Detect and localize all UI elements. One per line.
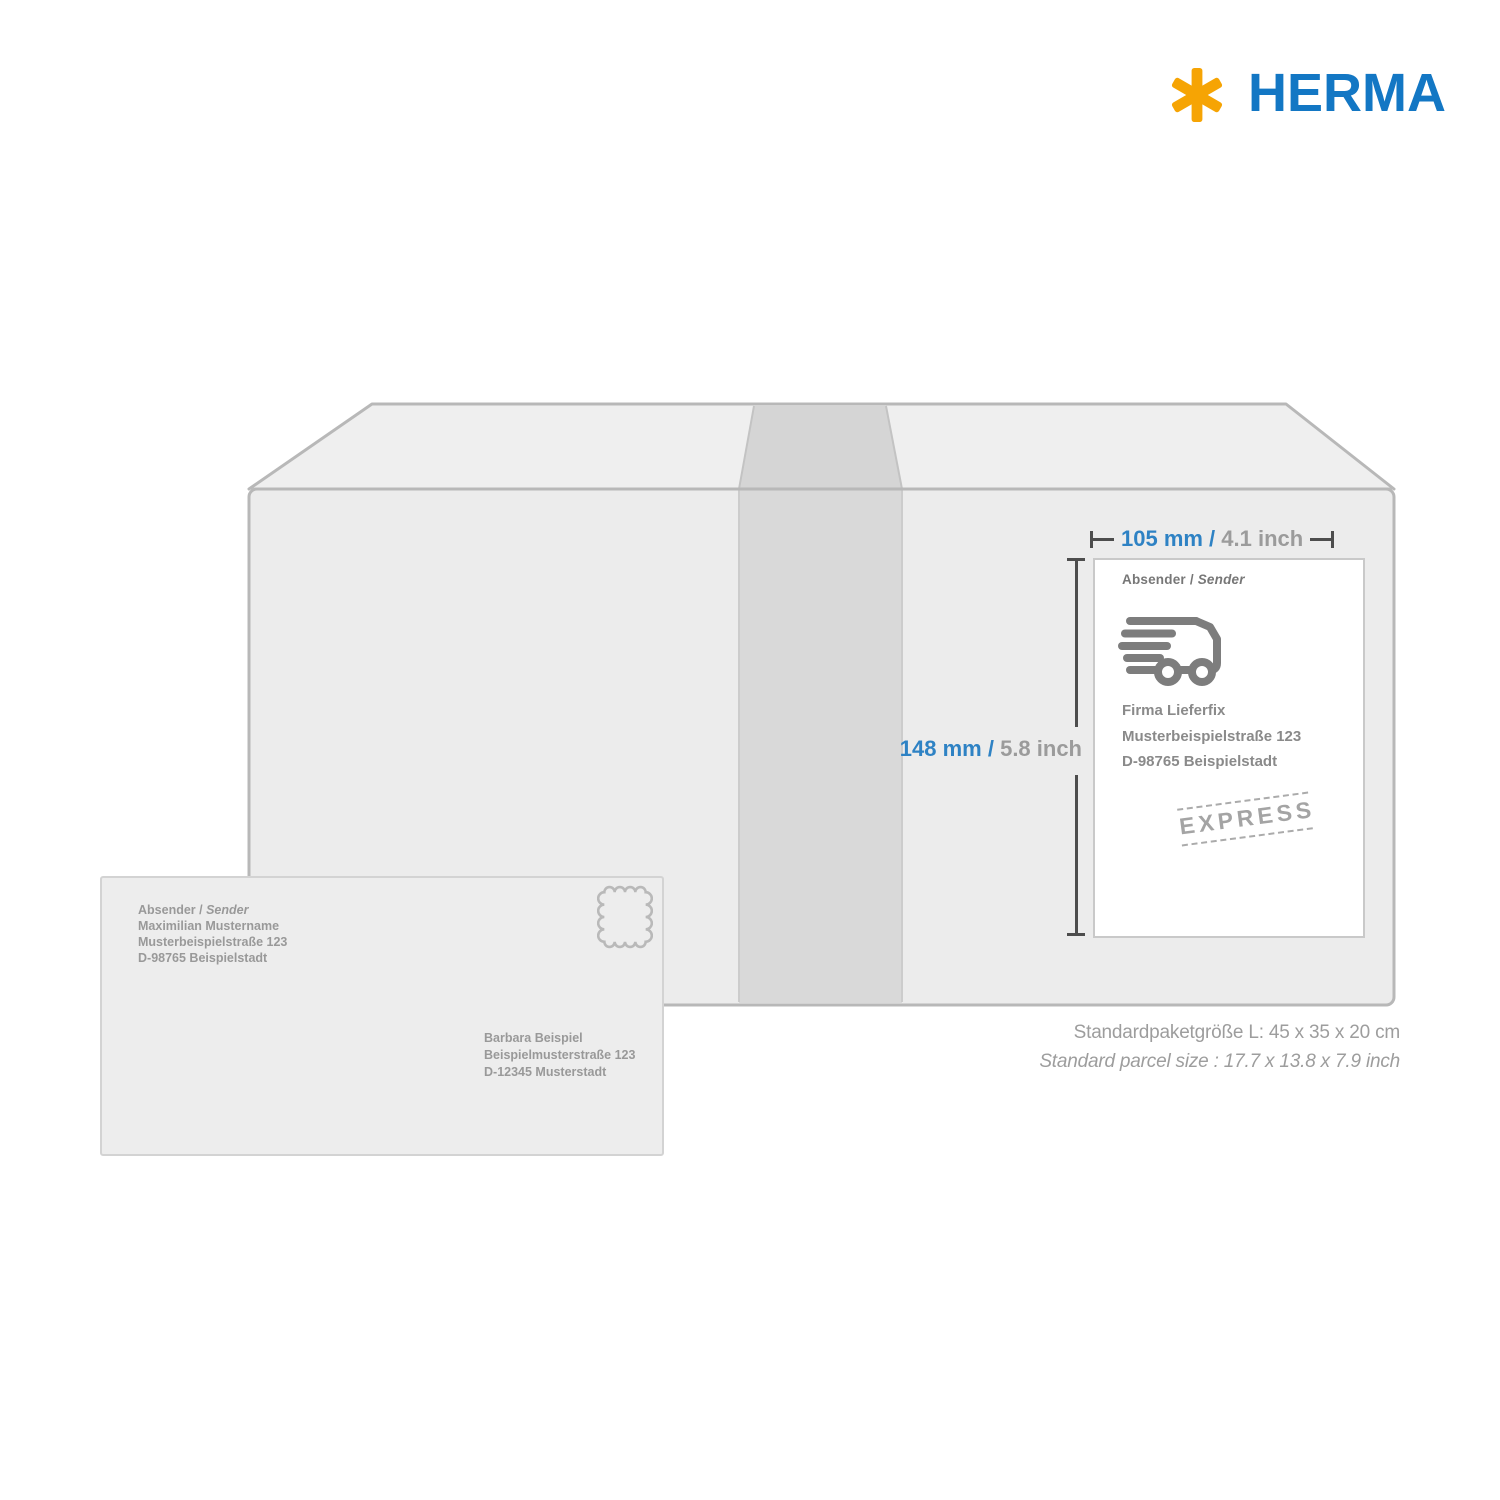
dimension-line — [1093, 538, 1114, 541]
envelope-sender-header: Absender / Sender — [138, 902, 287, 918]
label-header-en: Sender — [1198, 572, 1245, 587]
parcel-size-en: Standard parcel size : 17.7 x 13.8 x 7.9… — [900, 1047, 1400, 1076]
envelope-header-en: Sender — [206, 903, 248, 917]
parcel-size-caption: Standardpaketgröße L: 45 x 35 x 20 cm St… — [900, 1018, 1400, 1076]
delivery-truck-icon — [1113, 612, 1251, 704]
herma-product-illustration: HERMA 105 mm / 4.1 inch 148 mm / 5.8 inc… — [0, 0, 1500, 1500]
envelope-sender-line: D-98765 Beispielstadt — [138, 950, 287, 966]
parcel-size-de: Standardpaketgröße L: 45 x 35 x 20 cm — [900, 1018, 1400, 1047]
herma-logo-text: HERMA — [1248, 66, 1446, 120]
dimension-end-cap — [1067, 933, 1085, 936]
envelope: Absender / Sender Maximilian Mustername … — [100, 876, 664, 1156]
dimension-end-cap — [1331, 531, 1334, 548]
height-dimension-text: 148 mm / 5.8 inch — [832, 736, 1082, 762]
envelope-sender-line: Maximilian Mustername — [138, 918, 287, 934]
width-dimension-annotation: 105 mm / 4.1 inch — [1090, 526, 1334, 552]
dimension-line — [1075, 559, 1078, 727]
herma-logo: HERMA — [1170, 66, 1450, 126]
width-mm-value: 105 mm / — [1121, 526, 1221, 551]
label-header-de: Absender / — [1122, 572, 1198, 587]
dimension-line — [1075, 775, 1078, 935]
envelope-sender-line: Musterbeispielstraße 123 — [138, 934, 287, 950]
envelope-recipient-block: Barbara Beispiel Beispielmusterstraße 12… — [484, 1030, 635, 1081]
envelope-recipient-line: Barbara Beispiel — [484, 1030, 635, 1047]
height-mm-value: 148 mm / — [900, 736, 1000, 761]
herma-asterisk-icon — [1170, 68, 1224, 122]
parcel-tape-top — [739, 406, 902, 489]
label-address-line: Firma Lieferfix — [1122, 698, 1301, 724]
label-address-line: Musterbeispielstraße 123 — [1122, 724, 1301, 750]
label-address-line: D-98765 Beispielstadt — [1122, 749, 1301, 775]
width-inch-value: 4.1 inch — [1221, 526, 1303, 551]
label-sender-header: Absender / Sender — [1122, 572, 1245, 587]
envelope-recipient-line: Beispielmusterstraße 123 — [484, 1047, 635, 1064]
envelope-recipient-line: D-12345 Musterstadt — [484, 1064, 635, 1081]
height-inch-value: 5.8 inch — [1000, 736, 1082, 761]
width-dimension-text: 105 mm / 4.1 inch — [1114, 526, 1310, 552]
dimension-line — [1310, 538, 1331, 541]
envelope-header-de: Absender / — [138, 903, 206, 917]
label-address-block: Firma Lieferfix Musterbeispielstraße 123… — [1122, 698, 1301, 775]
express-stamp: EXPRESS — [1177, 792, 1313, 847]
envelope-sender-block: Absender / Sender Maximilian Mustername … — [138, 902, 287, 966]
postage-stamp-icon — [597, 885, 653, 949]
shipping-label: Absender / Sender Firma Lieferfix — [1093, 558, 1365, 938]
